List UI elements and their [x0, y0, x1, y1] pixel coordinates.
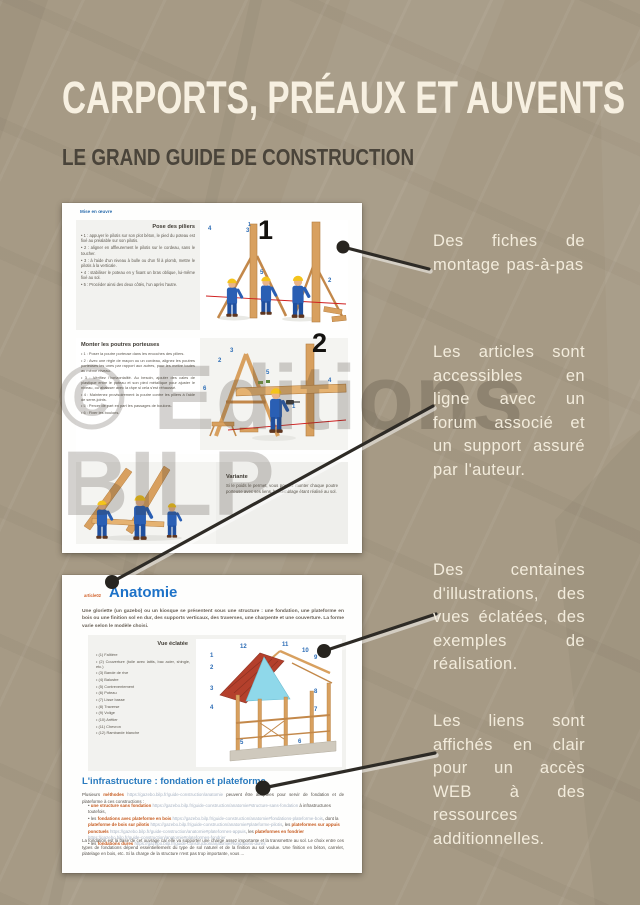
exploded-number: 11	[282, 642, 288, 648]
exploded-number: 6	[298, 739, 301, 745]
annotation-fiches-montage: Des fiches de montage pas-à-pas	[433, 230, 585, 277]
doc1-step1-item: 1 : appuyer le pilotis sur son plot béto…	[81, 233, 195, 244]
exploded-item: (6) Poteau	[96, 690, 190, 695]
exploded-number: 8	[314, 689, 317, 695]
infra-url: https://gazebo.bilp.fr/guide-constructio…	[109, 829, 246, 834]
exploded-item: (11) Chevron	[96, 724, 190, 729]
exploded-item: (12) Rambarde blanche	[96, 730, 190, 735]
annotation-illustrations: Des centaines d'illustrations, des vues …	[433, 559, 585, 677]
doc1-step1-illustration: 4 3 5 2	[200, 220, 348, 330]
doc2-exploded-heading: Vue éclatée	[96, 641, 188, 647]
exploded-item: (9) Volige	[96, 710, 190, 715]
exploded-number: 12	[240, 644, 247, 650]
doc1-step1-section: Pose des piliers 1 : appuyer le pilotis …	[76, 220, 348, 330]
callout-number: 1	[248, 223, 251, 228]
doc2-intro: Une gloriette (un gazebo) ou un kiosque …	[82, 608, 344, 630]
infra-intro-url: https://gazebo.bilp.fr/guide-constructio…	[124, 792, 226, 797]
infra-url: https://gazebo.bilp.fr/guide-constructio…	[151, 803, 298, 808]
infra-link[interactable]: plateformes en fondrier	[255, 829, 304, 834]
doc1-step1-list: 1 : appuyer le pilotis sur son plot béto…	[81, 233, 195, 288]
infra-text: , les	[246, 829, 255, 834]
exploded-number: 5	[240, 740, 243, 746]
infra-link[interactable]: une structure sans fondation	[91, 803, 152, 808]
callout-number: 2	[328, 278, 331, 284]
doc2-exploded-list: (1) Faîtière (2) Couverture (toile avec …	[96, 652, 190, 737]
infra-link[interactable]: plateforme de bois sur pilotis	[88, 822, 149, 827]
exploded-number: 10	[302, 648, 309, 654]
doc-panel-anatomie: article02 Anatomie Une gloriette (un gaz…	[62, 575, 362, 873]
infra-text: les	[91, 816, 98, 821]
doc1-breadcrumb-link[interactable]: Mise en œuvre	[80, 209, 112, 214]
exploded-item: (5) Contreventement	[96, 684, 190, 689]
doc1-step1-item: 3 : à l'aide d'un niveau à bulle ou d'un…	[81, 258, 195, 269]
exploded-item: (2) Couverture (toile avec lattis, bac a…	[96, 659, 190, 669]
infra-text: , dont la	[323, 816, 339, 821]
infra-link[interactable]: fondations avec plateforme en bois	[98, 816, 172, 821]
page-title: CARPORTS, PRÉAUX ET AUVENTS	[62, 72, 625, 124]
exploded-item: (1) Faîtière	[96, 652, 190, 657]
exploded-number: 4	[210, 705, 213, 711]
infra-intro-link[interactable]: méthodes	[103, 792, 124, 797]
exploded-item: (10) Arêtier	[96, 717, 190, 722]
doc2-heading: Anatomie	[109, 584, 177, 601]
exploded-item: (4) Balustre	[96, 677, 190, 682]
doc1-step1-heading: Pose des piliers	[81, 224, 195, 230]
gazebo-exploded-view	[196, 639, 342, 767]
doc2-gazebo-illustration: 1 2 3 4 5 6 7 8 9 10 11 12	[196, 639, 342, 767]
posts-raising-illustration	[200, 220, 348, 330]
infra-url: https://gazebo.bilp.fr/guide-constructio…	[149, 822, 282, 827]
doc2-infra-heading: L'infrastructure : fondation et platefor…	[82, 776, 266, 787]
exploded-number: 1	[210, 653, 213, 659]
infra-intro-lead: Plusieurs	[82, 792, 103, 797]
page-subtitle: LE GRAND GUIDE DE CONSTRUCTION	[62, 144, 414, 171]
exploded-item: (7) Lisse basse	[96, 697, 190, 702]
annotation-articles-en-ligne: Les articles sont accessibles en ligne a…	[433, 341, 585, 482]
doc1-step1-item: 5 : Procéder ainsi des deux côtés, l'un …	[81, 282, 195, 287]
exploded-item: (8) Traverse	[96, 704, 190, 709]
figure-number-1: 1	[258, 217, 273, 244]
exploded-number: 9	[314, 655, 317, 661]
infra-text: , les	[282, 822, 291, 827]
exploded-number: 7	[314, 707, 317, 713]
callout-number: 4	[208, 226, 211, 232]
doc1-step1-item: 2 : aligner en affleurement le pilotis s…	[81, 245, 195, 256]
watermark-bilp: BILP	[62, 438, 276, 530]
doc2-infra-footer: La fondation est la base de cet ouvrage …	[82, 838, 344, 858]
doc2-exploded-box: Vue éclatée (1) Faîtière (2) Couverture …	[88, 635, 346, 771]
callout-number: 3	[246, 228, 249, 234]
exploded-number: 2	[210, 665, 213, 671]
exploded-number: 3	[210, 686, 213, 692]
infra-bullet: une structure sans fondation https://gaz…	[88, 803, 344, 816]
doc2-article-tag: article02	[84, 593, 101, 598]
doc1-step1-item: 4 : stabiliser le poteau en y fixant un …	[81, 270, 195, 281]
annotation-liens-web: Les liens sont affichés en clair pour un…	[433, 710, 585, 851]
exploded-item: (3) Bande de rive	[96, 670, 190, 675]
infra-url: https://gazebo.bilp.fr/guide-constructio…	[171, 816, 323, 821]
callout-number: 5	[260, 270, 263, 276]
brochure-page: { "header": { "title": "CARPORTS, PRÉAUX…	[0, 0, 640, 905]
